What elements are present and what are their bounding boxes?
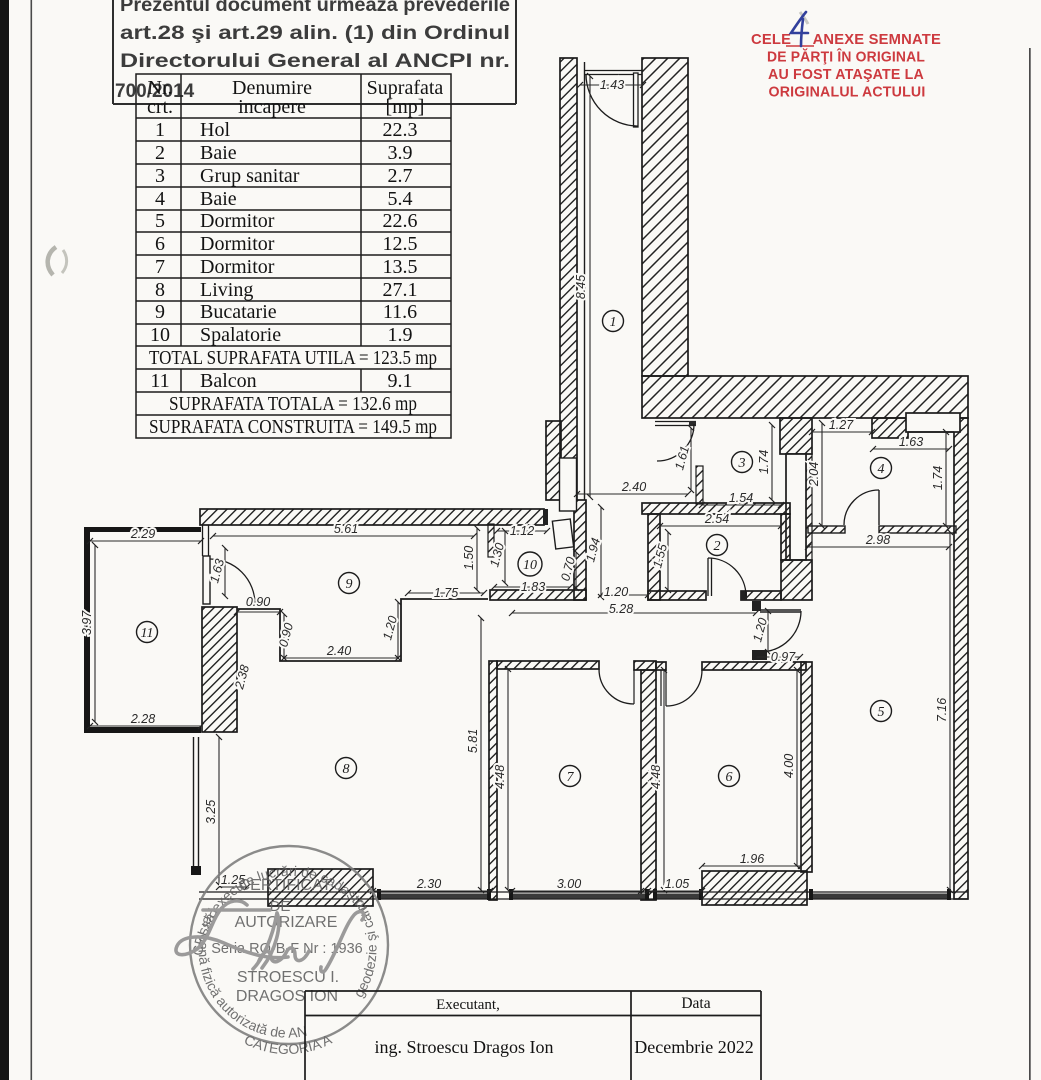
svg-text:1.74: 1.74 [931, 466, 945, 490]
svg-text:Decembrie 2022: Decembrie 2022 [634, 1037, 753, 1057]
svg-text:22.6: 22.6 [383, 210, 418, 232]
svg-text:4.48: 4.48 [493, 765, 507, 789]
svg-text:Executant,: Executant, [436, 997, 500, 1013]
svg-text:5.28: 5.28 [609, 602, 633, 616]
svg-text:Dormitor: Dormitor [200, 233, 275, 255]
svg-text:8: 8 [155, 279, 165, 301]
svg-text:2: 2 [714, 539, 721, 554]
svg-text:Balcon: Balcon [200, 370, 257, 392]
svg-text:8.45: 8.45 [574, 275, 588, 299]
svg-text:art.28 şi art.29 alin. (1) din: art.28 şi art.29 alin. (1) din Ordinul [120, 23, 510, 44]
svg-text:22.3: 22.3 [383, 119, 418, 141]
svg-text:6: 6 [726, 770, 733, 785]
svg-text:7: 7 [567, 770, 575, 785]
svg-text:Data: Data [681, 995, 710, 1012]
svg-text:9: 9 [346, 577, 353, 592]
svg-text:4.48: 4.48 [649, 765, 663, 789]
svg-text:1.20: 1.20 [604, 585, 628, 599]
svg-text:12.5: 12.5 [383, 233, 418, 255]
svg-text:[mp]: [mp] [386, 96, 425, 118]
svg-text:3: 3 [155, 165, 165, 187]
svg-text:4.00: 4.00 [782, 754, 796, 778]
svg-text:7.16: 7.16 [935, 698, 949, 722]
svg-text:3.25: 3.25 [204, 800, 218, 824]
svg-text:2.7: 2.7 [388, 165, 413, 187]
svg-text:Prezentul document urmează pre: Prezentul document urmează prevederile [120, 0, 510, 16]
svg-text:Dormitor: Dormitor [200, 210, 275, 232]
svg-text:Living: Living [200, 279, 253, 301]
svg-text:2.30: 2.30 [416, 877, 441, 891]
svg-text:Directorului General al ANCPI: Directorului General al ANCPI nr. [120, 51, 510, 72]
svg-text:Baie: Baie [200, 142, 237, 164]
svg-text:3: 3 [738, 456, 746, 471]
svg-text:1.43: 1.43 [600, 78, 624, 92]
svg-text:1.27: 1.27 [829, 418, 854, 432]
svg-text:13.5: 13.5 [383, 256, 418, 278]
svg-text:0.97: 0.97 [771, 650, 796, 664]
svg-text:9: 9 [155, 301, 165, 323]
svg-text:DE: DE [270, 898, 291, 915]
svg-text:4: 4 [878, 462, 885, 477]
svg-text:1.05: 1.05 [665, 877, 689, 891]
svg-text:27.1: 27.1 [383, 279, 418, 301]
svg-text:3.00: 3.00 [557, 877, 581, 891]
svg-text:1: 1 [610, 315, 617, 330]
svg-text:SUPRAFATA TOTALA = 132.6 mp: SUPRAFATA TOTALA = 132.6 mp [169, 393, 417, 415]
svg-text:2.29: 2.29 [130, 527, 155, 541]
svg-text:2.54: 2.54 [704, 512, 729, 526]
svg-text:3.97: 3.97 [80, 610, 94, 635]
svg-text:crt.: crt. [147, 96, 173, 118]
svg-text:DE PĂRŢI ÎN ORIGINAL: DE PĂRŢI ÎN ORIGINAL [767, 48, 925, 66]
svg-text:6: 6 [155, 233, 165, 255]
svg-text:TOTAL SUPRAFATA UTILA = 123.5: TOTAL SUPRAFATA UTILA = 123.5 mp [149, 347, 437, 369]
svg-text:2: 2 [155, 142, 165, 164]
svg-text:Grup sanitar: Grup sanitar [200, 165, 300, 187]
svg-text:4: 4 [155, 188, 165, 210]
svg-text:2.04: 2.04 [807, 462, 821, 487]
svg-text:5: 5 [155, 210, 165, 232]
svg-text:incapere: incapere [238, 96, 306, 118]
svg-text:1.83: 1.83 [521, 580, 545, 594]
svg-text:8: 8 [343, 762, 350, 777]
svg-text:1.63: 1.63 [899, 435, 923, 449]
svg-text:3.9: 3.9 [388, 142, 413, 164]
svg-text:5.61: 5.61 [334, 522, 358, 536]
svg-text:11.6: 11.6 [383, 301, 417, 323]
svg-text:AUTORIZARE: AUTORIZARE [235, 914, 338, 931]
svg-text:Hol: Hol [200, 119, 230, 141]
svg-text:1.12: 1.12 [510, 524, 534, 538]
svg-text:1.54: 1.54 [729, 491, 753, 505]
svg-text:ORIGINALUL ACTULUI: ORIGINALUL ACTULUI [769, 84, 926, 101]
svg-text:Spalatorie: Spalatorie [200, 324, 281, 346]
svg-text:1: 1 [155, 119, 165, 141]
svg-text:Bucatarie: Bucatarie [200, 301, 277, 323]
svg-text:2.28: 2.28 [130, 712, 155, 726]
svg-text:9.1: 9.1 [388, 370, 413, 392]
svg-text:1.96: 1.96 [740, 852, 764, 866]
svg-text:1.75: 1.75 [434, 586, 458, 600]
svg-text:1.50: 1.50 [462, 546, 476, 570]
svg-text:2.40: 2.40 [326, 644, 351, 658]
svg-text:5.81: 5.81 [466, 729, 480, 753]
svg-text:0.90: 0.90 [246, 595, 270, 609]
svg-text:Dormitor: Dormitor [200, 256, 275, 278]
svg-text:5.4: 5.4 [388, 188, 413, 210]
svg-text:11: 11 [150, 370, 169, 392]
svg-text:11: 11 [141, 626, 154, 641]
svg-text:SUPRAFATA CONSTRUITA = 149.5 m: SUPRAFATA CONSTRUITA = 149.5 mp [149, 416, 437, 438]
svg-text:Baie: Baie [200, 188, 237, 210]
svg-text:7: 7 [155, 256, 165, 278]
svg-text:10: 10 [150, 324, 170, 346]
svg-text:5: 5 [878, 705, 885, 720]
svg-text:AU FOST ATAŞATE LA: AU FOST ATAŞATE LA [768, 66, 924, 83]
svg-text:ing. Stroescu Dragos Ion: ing. Stroescu Dragos Ion [375, 1037, 554, 1057]
svg-text:2.98: 2.98 [865, 533, 890, 547]
svg-text:CERTIFICAT: CERTIFICAT [239, 877, 332, 894]
svg-text:10: 10 [523, 558, 537, 573]
svg-text:2.40: 2.40 [621, 480, 646, 494]
svg-text:1.9: 1.9 [388, 324, 413, 346]
svg-text:CELE ANEXE SEMNATE: CELE ANEXE SEMNATE [751, 31, 941, 48]
svg-text:1.74: 1.74 [757, 450, 771, 474]
